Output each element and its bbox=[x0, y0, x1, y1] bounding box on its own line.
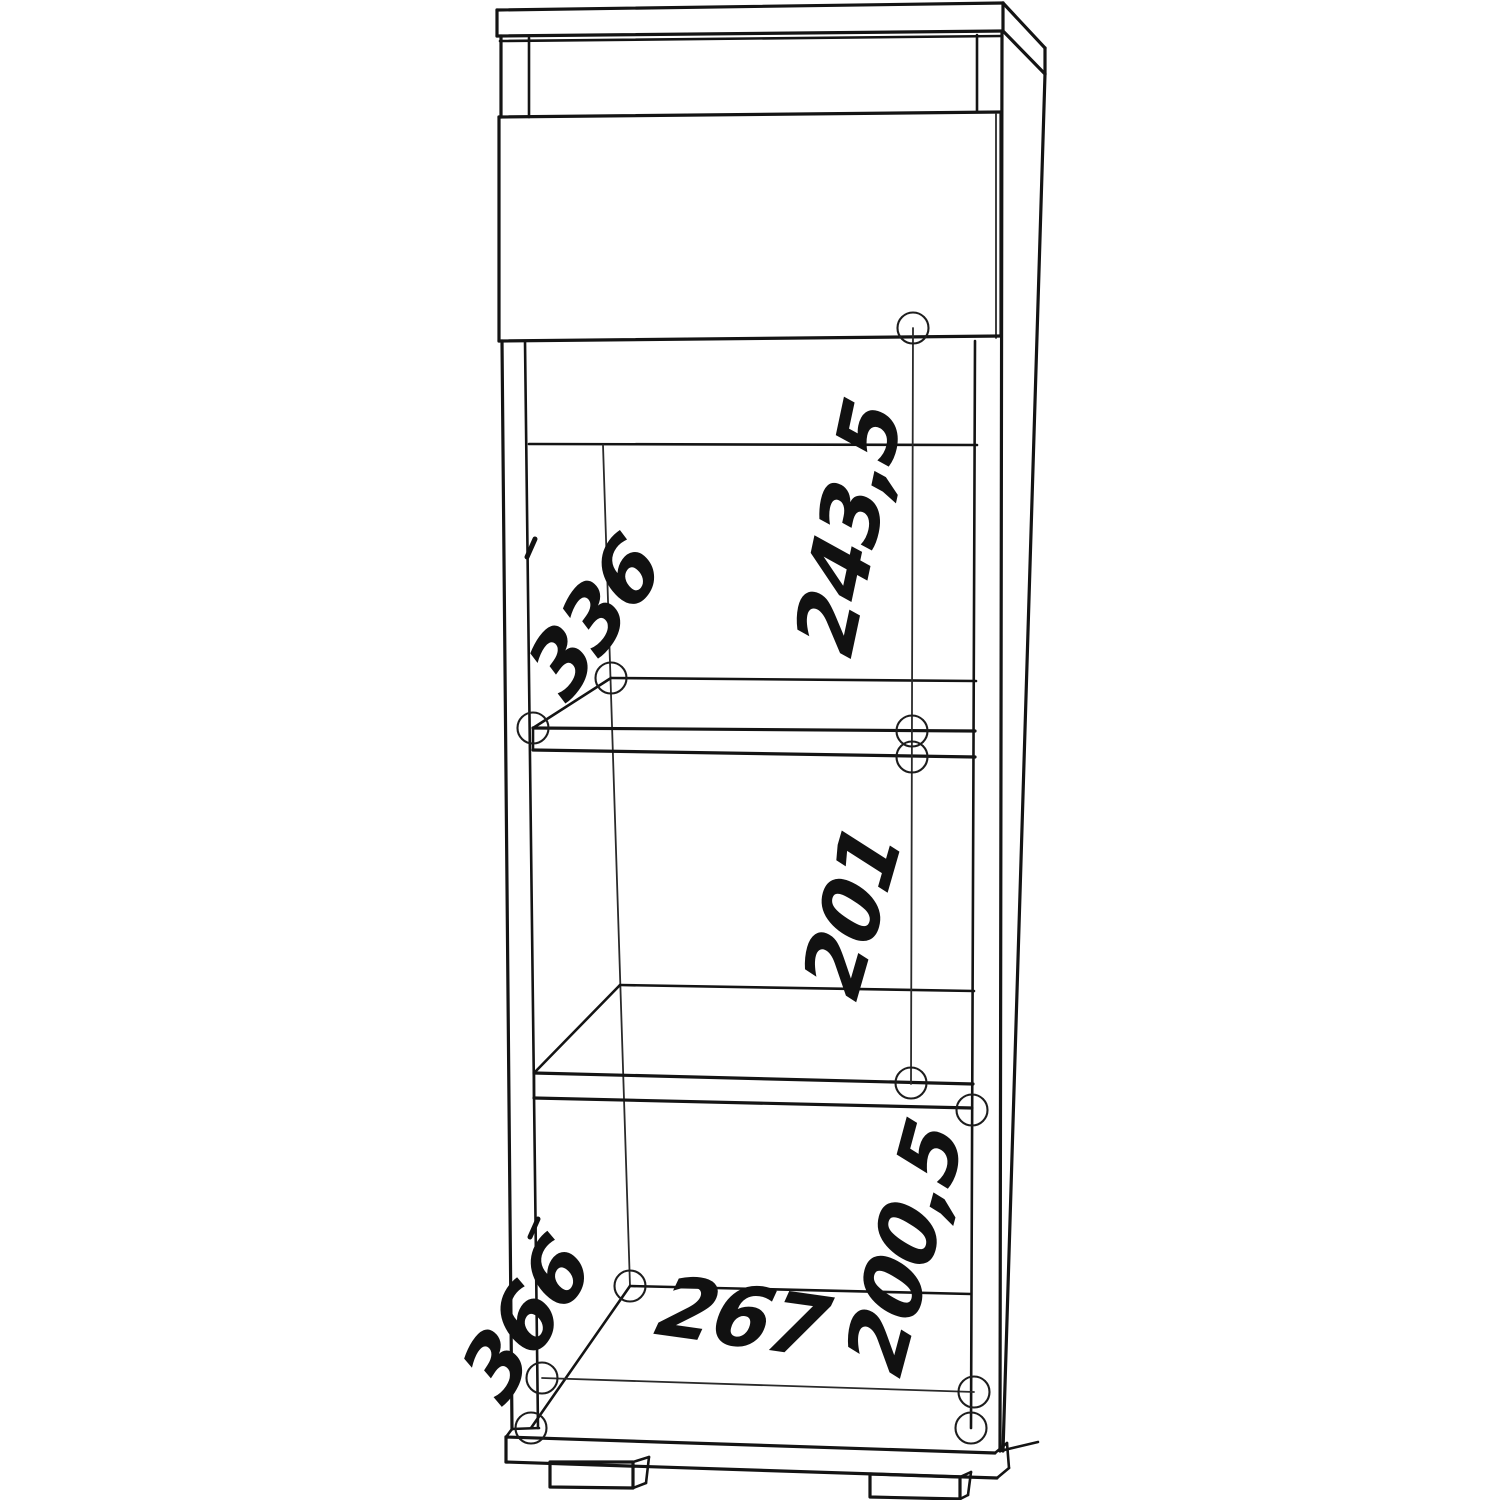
left-foot-side-bottom bbox=[633, 1483, 646, 1488]
dimension-label-bottom-panel-depth: 366 bbox=[443, 1219, 610, 1421]
top-panel-right-top-edge bbox=[1003, 3, 1045, 48]
top-panel-right-bottom-edge bbox=[1003, 31, 1045, 74]
left-foot-side-edge bbox=[646, 1457, 649, 1483]
plinth-top-edge bbox=[506, 1437, 995, 1453]
dimension-label-middle-opening-height: 201 bbox=[784, 814, 921, 1011]
shelf-1-back-edge bbox=[611, 678, 976, 681]
plinth-right-side-bottom bbox=[997, 1468, 1009, 1478]
top-panel-front-bottom-edge bbox=[497, 31, 1003, 36]
dimension-label-bottom-opening-width: 267 bbox=[648, 1258, 840, 1377]
dimension-label-upper-opening-height: 243,5 bbox=[776, 390, 922, 666]
top-panel-front-top-edge bbox=[497, 3, 1003, 10]
left-foot-side-top bbox=[633, 1457, 649, 1462]
shelf-2-front-top-edge bbox=[534, 1073, 973, 1084]
right-side-inner-edge-lower bbox=[971, 341, 975, 1428]
technical-drawing-canvas: 243,5 336 201 200,5 267 366 bbox=[0, 0, 1500, 1500]
right-foot-front-face bbox=[870, 1474, 960, 1499]
dimension-labels: 243,5 336 201 200,5 267 366 bbox=[443, 390, 984, 1420]
shelf-1-front-bottom-edge bbox=[533, 750, 975, 757]
shelf-2-back-edge bbox=[620, 985, 974, 991]
right-side-back-edge bbox=[1003, 74, 1045, 1451]
left-foot bbox=[550, 1457, 649, 1488]
plinth-right-side-edge bbox=[1007, 1443, 1009, 1468]
top-panel bbox=[497, 3, 1045, 74]
carcass bbox=[501, 31, 1045, 1451]
drawer-front bbox=[499, 112, 1001, 341]
dimension-label-shelf-depth-top: 336 bbox=[509, 518, 680, 719]
shelf-2 bbox=[534, 985, 974, 1108]
right-foot bbox=[870, 1472, 971, 1499]
right-foot-side-edge bbox=[968, 1472, 971, 1495]
dimension-label-lower-opening-height: 200,5 bbox=[827, 1109, 984, 1386]
shelf-2-left-edge bbox=[534, 985, 620, 1073]
drawer-top-edge bbox=[499, 112, 1001, 117]
cabinet-assembly-drawing: 243,5 336 201 200,5 267 366 bbox=[0, 0, 1500, 1500]
shelf-1-front-top-edge bbox=[533, 728, 975, 731]
shelf-2-front-bottom-edge bbox=[534, 1098, 972, 1108]
